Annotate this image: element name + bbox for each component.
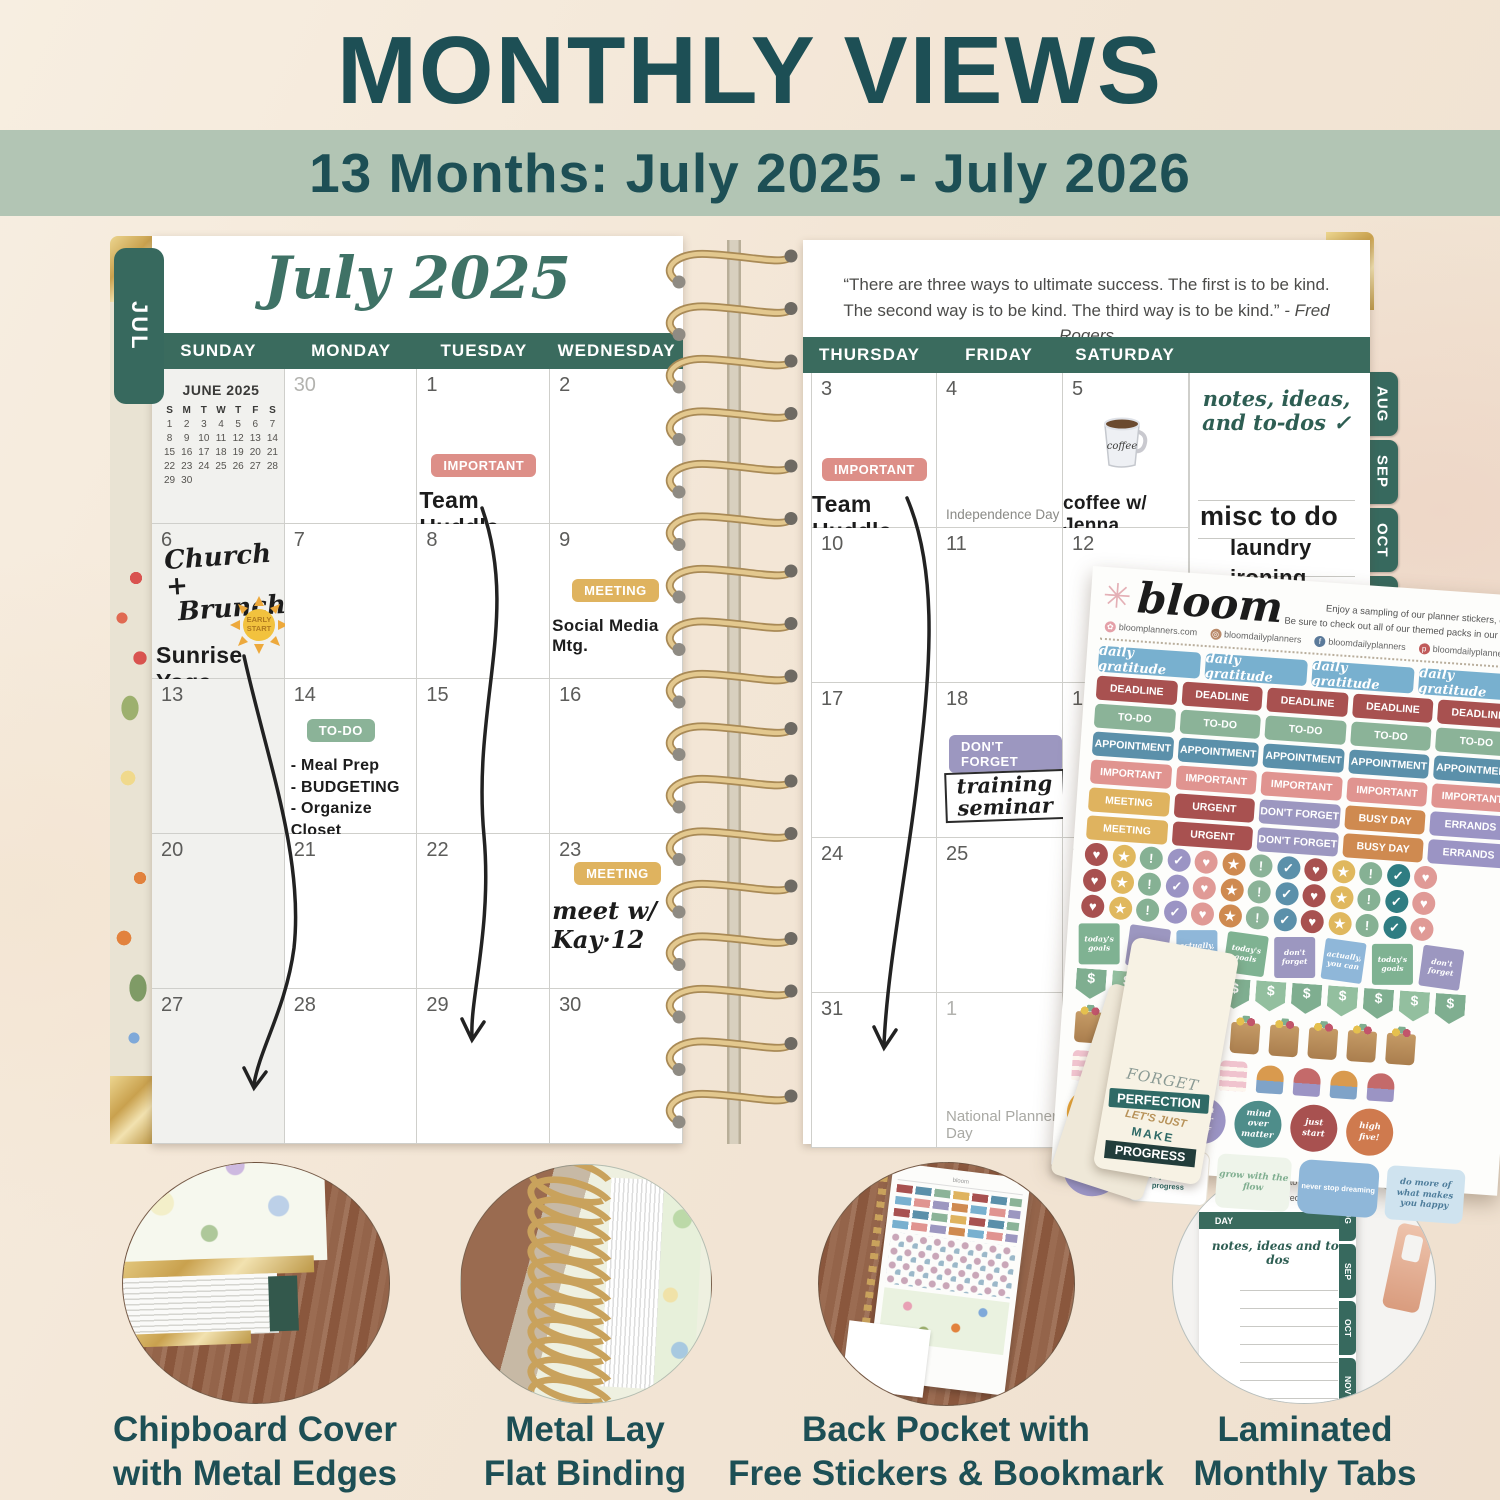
dot-sticker: ! <box>1247 880 1272 905</box>
deadline-sticker: DEADLINE <box>1437 699 1500 729</box>
todo-sticker: TO-DO <box>1094 704 1176 734</box>
dot-sticker: ✓ <box>1386 863 1411 888</box>
bloom-flower-icon: ✳ <box>1102 575 1133 615</box>
todo-sticker: TO-DO <box>1435 727 1500 757</box>
dot-sticker: ♥ <box>1410 917 1435 942</box>
busy-day-sticker: BUSY DAY <box>1342 833 1424 863</box>
dot-sticker: ★ <box>1221 852 1246 877</box>
meeting-sticker: MEETING <box>1086 815 1168 845</box>
pinterest-icon: p <box>1418 643 1430 655</box>
deadline-sticker: DEADLINE <box>1181 682 1263 712</box>
mind-over-matter-sticker: mind over matter <box>1233 1099 1283 1149</box>
product-image: MONTHLY VIEWS 13 Months: July 2025 - Jul… <box>0 0 1500 1500</box>
important-sticker: IMPORTANT <box>1261 771 1343 801</box>
important-sticker: IMPORTANT <box>1175 765 1257 795</box>
grow-quote-sticker: grow with the flow <box>1215 1153 1293 1212</box>
subtitle-band: 13 Months: July 2025 - July 2026 <box>0 130 1500 216</box>
feature-photo-chipboard <box>122 1162 390 1404</box>
cupcake-icon <box>1329 1070 1358 1100</box>
feature-caption-2: Metal LayFlat Binding <box>425 1408 745 1496</box>
dream-quote-sticker: never stop dreaming <box>1296 1159 1380 1218</box>
dot-sticker: ♥ <box>1084 842 1109 867</box>
dot-sticker: ! <box>1357 887 1382 912</box>
dot-sticker: ♥ <box>1192 876 1217 901</box>
daily-gratitude-sticker: daily gratitude <box>1098 646 1202 679</box>
dot-sticker: ! <box>1245 906 1270 931</box>
dot-sticker: ♥ <box>1194 850 1219 875</box>
cupcake-icon <box>1293 1067 1322 1097</box>
spiral-binding <box>655 240 815 1144</box>
dot-sticker: ★ <box>1219 878 1244 903</box>
dollar-flag-sticker: $ <box>1362 988 1394 1020</box>
meeting-sticker: MEETING <box>1088 787 1170 817</box>
deadline-sticker: DEADLINE <box>1266 688 1348 718</box>
dot-sticker: ♥ <box>1190 902 1215 927</box>
errands-sticker: ERRANDS <box>1429 811 1500 841</box>
gold-corner-bottom-left <box>110 1076 152 1144</box>
high-five-sticker: high five! <box>1345 1107 1395 1157</box>
sticky-note-sticker: today's goals <box>1079 923 1120 964</box>
dot-sticker: ♥ <box>1300 909 1325 934</box>
page-title: MONTHLY VIEWS <box>0 16 1500 126</box>
errands-sticker: ERRANDS <box>1427 839 1500 869</box>
facebook-icon: f <box>1314 636 1326 648</box>
dot-sticker: ★ <box>1327 911 1352 936</box>
feature-caption-4: LaminatedMonthly Tabs <box>1135 1408 1475 1496</box>
feature-caption-1: Chipboard Coverwith Metal Edges <box>75 1408 435 1496</box>
cupcake-icon <box>1256 1065 1285 1095</box>
dont-forget-sticker: DON'T FORGET <box>1259 799 1341 829</box>
flower-icon: ✿ <box>1104 621 1116 633</box>
subtitle: 13 Months: July 2025 - July 2026 <box>309 141 1191 205</box>
busy-day-sticker: BUSY DAY <box>1344 805 1426 835</box>
todo-sticker: TO-DO <box>1265 715 1347 745</box>
deadline-sticker: DEADLINE <box>1096 676 1178 706</box>
grocery-bag-icon <box>1346 1030 1377 1063</box>
dollar-flag-sticker: $ <box>1075 968 1107 1000</box>
appointment-sticker: APPOINTMENT <box>1348 749 1430 779</box>
dot-sticker: ✓ <box>1382 915 1407 940</box>
dot-sticker: ✓ <box>1276 856 1301 881</box>
important-sticker: IMPORTANT <box>1090 759 1172 789</box>
important-sticker: IMPORTANT <box>1346 777 1428 807</box>
dot-sticker: ★ <box>1108 896 1133 921</box>
dot-sticker: ★ <box>1331 859 1356 884</box>
urgent-sticker: URGENT <box>1173 793 1255 823</box>
dot-sticker: ♥ <box>1304 858 1329 883</box>
dot-sticker: ! <box>1137 872 1162 897</box>
sticky-note-sticker: don't forget <box>1274 937 1315 978</box>
sticky-note-sticker: actually, you can <box>1320 938 1366 984</box>
notes-script-fragment: notes, ideas and to-dos <box>1199 1229 1356 1273</box>
deadline-sticker: DEADLINE <box>1352 693 1434 723</box>
grocery-bag-icon <box>1268 1024 1299 1057</box>
sticky-note-sticker: today's goals <box>1372 944 1413 985</box>
urgent-sticker: URGENT <box>1171 821 1253 851</box>
daily-gratitude-sticker: daily gratitude <box>1204 653 1308 686</box>
dot-sticker: ★ <box>1329 885 1354 910</box>
dot-sticker: ✓ <box>1273 907 1298 932</box>
feature-photo-binding <box>460 1164 712 1404</box>
dot-sticker: ♥ <box>1413 865 1438 890</box>
grocery-bag-icon <box>1229 1022 1260 1055</box>
feature-caption-3: Back Pocket withFree Stickers & Bookmark <box>722 1408 1170 1496</box>
dot-sticker: ♥ <box>1082 868 1107 893</box>
dot-sticker: ✓ <box>1163 900 1188 925</box>
feature-photo-back-pocket: bloom <box>818 1162 1075 1406</box>
just-start-sticker: just start <box>1289 1103 1339 1153</box>
appointment-sticker: APPOINTMENT <box>1177 737 1259 767</box>
todo-sticker: TO-DO <box>1179 709 1261 739</box>
dollar-flag-sticker: $ <box>1290 983 1322 1015</box>
happy-quote-sticker: do more of what makes you happy <box>1384 1165 1466 1224</box>
instagram-icon: ◎ <box>1210 628 1222 640</box>
dollar-flag-sticker: $ <box>1434 993 1466 1025</box>
dot-sticker: ! <box>1355 913 1380 938</box>
dot-sticker: ♥ <box>1080 894 1105 919</box>
dot-sticker: ! <box>1135 898 1160 923</box>
dot-sticker: ♥ <box>1411 891 1436 916</box>
dot-sticker: ! <box>1139 846 1164 871</box>
dot-sticker: ✓ <box>1274 882 1299 907</box>
daily-gratitude-sticker: daily gratitude <box>1311 661 1415 694</box>
dollar-flag-sticker: $ <box>1326 985 1358 1017</box>
dot-sticker: ★ <box>1110 870 1135 895</box>
dot-sticker: ! <box>1358 861 1383 886</box>
appointment-sticker: APPOINTMENT <box>1263 743 1345 773</box>
grocery-bag-icon <box>1307 1027 1338 1060</box>
dot-sticker: ✓ <box>1384 889 1409 914</box>
dont-forget-sticker: DON'T FORGET <box>1257 827 1339 857</box>
cake-slice-icon <box>1219 1060 1248 1092</box>
grocery-bag-icon <box>1385 1033 1416 1066</box>
dot-sticker: ★ <box>1218 904 1243 929</box>
dollar-flag-sticker: $ <box>1254 980 1286 1012</box>
sticky-note-sticker: don't forget <box>1418 945 1464 991</box>
todo-sticker: TO-DO <box>1350 721 1432 751</box>
dot-sticker: ★ <box>1112 844 1137 869</box>
rose-gold-clip <box>1382 1223 1436 1315</box>
appointment-sticker: APPOINTMENT <box>1092 731 1174 761</box>
dot-sticker: ! <box>1249 854 1274 879</box>
bloom-logo: bloom <box>1136 577 1284 629</box>
dot-sticker: ♥ <box>1302 883 1327 908</box>
appointment-sticker: APPOINTMENT <box>1433 755 1500 785</box>
cupcake-icon <box>1366 1072 1395 1102</box>
dot-sticker: ✓ <box>1166 848 1191 873</box>
important-sticker: IMPORTANT <box>1431 783 1500 813</box>
dollar-flag-sticker: $ <box>1398 990 1430 1022</box>
daily-gratitude-sticker: daily gratitude <box>1418 668 1500 701</box>
dot-sticker: ✓ <box>1165 874 1190 899</box>
monthly-tabs-closeup: AUG SEP OCT NOV <box>1339 1187 1356 1404</box>
